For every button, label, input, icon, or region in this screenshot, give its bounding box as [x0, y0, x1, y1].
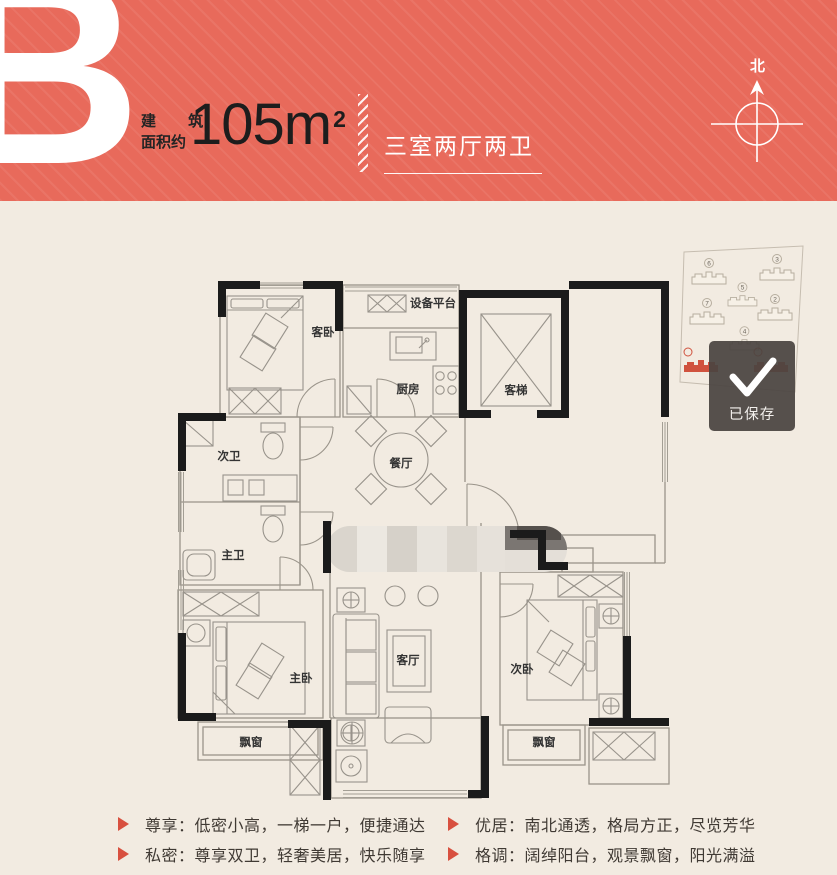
- building-number: 5: [741, 285, 745, 292]
- area-superscript: 2: [333, 106, 345, 132]
- room-label-master-bedroom: 主卧: [290, 671, 313, 685]
- building-number: 6: [707, 261, 711, 268]
- arrow-icon: [448, 817, 459, 831]
- room-label-dining: 餐厅: [389, 456, 413, 470]
- area-number: 105m: [190, 92, 331, 157]
- room-label-kitchen: 厨房: [397, 382, 420, 396]
- feature-item: 尊享：低密小高，一梯一户，便捷通达: [118, 814, 426, 834]
- feature-text: 格调：阔绰阳台，观景飘窗，阳光满溢: [475, 842, 756, 866]
- feature-item: 私密：尊享双卫，轻奢美居，快乐随享: [118, 844, 426, 864]
- building-number: 3: [775, 257, 779, 264]
- arrow-icon: [118, 847, 129, 861]
- floorplan-svg: 客卧 设备平台 厨房 客梯 次卫 餐厅 主卫 主卧 客厅 次卧 飘窗 飘窗: [165, 270, 677, 818]
- hatch-divider-icon: [358, 94, 368, 172]
- page: { "header": { "plan_letter": "B", "area_…: [0, 0, 837, 875]
- feature-text: 私密：尊享双卫，轻奢美居，快乐随享: [145, 842, 426, 866]
- feature-text: 尊享：低密小高，一梯一户，便捷通达: [145, 812, 426, 836]
- doors: [280, 379, 533, 617]
- feature-item: 优居：南北通透，格局方正，尽览芳华: [448, 814, 756, 834]
- room-label-second-bedroom: 次卧: [511, 662, 534, 676]
- saved-toast: 已保存: [709, 341, 795, 431]
- feature-text: 优居：南北通透，格局方正，尽览芳华: [475, 812, 756, 836]
- compass-icon: [705, 76, 810, 168]
- layout-summary: 三室两厅两卫: [384, 127, 542, 174]
- room-label-second-bathroom: 次卫: [218, 449, 241, 463]
- room-label-bay-window-right: 飘窗: [533, 735, 556, 749]
- compass: 北: [705, 58, 810, 173]
- toast-label: 已保存: [729, 403, 776, 424]
- arrow-icon: [448, 847, 459, 861]
- feature-item: 格调：阔绰阳台，观景飘窗，阳光满溢: [448, 844, 756, 864]
- area-value: 105m2: [190, 93, 343, 157]
- building-number: 7: [705, 301, 709, 308]
- compass-north-label: 北: [705, 58, 810, 76]
- room-label-living: 客厅: [396, 653, 420, 667]
- building-number: 4: [743, 329, 747, 336]
- room-label-bay-window-left: 飘窗: [240, 735, 263, 749]
- room-label-guest-bedroom: 客卧: [311, 325, 335, 339]
- plan-letter: B: [0, 0, 136, 201]
- room-label-elevator: 客梯: [504, 383, 528, 397]
- room-label-master-bathroom: 主卫: [222, 548, 245, 562]
- building-number: 2: [773, 297, 777, 304]
- room-label-equipment-platform: 设备平台: [410, 296, 456, 310]
- header-banner: B 建 筑 面积约 105m2 三室两厅两卫 北: [0, 0, 837, 201]
- check-icon: [709, 349, 795, 401]
- arrow-icon: [118, 817, 129, 831]
